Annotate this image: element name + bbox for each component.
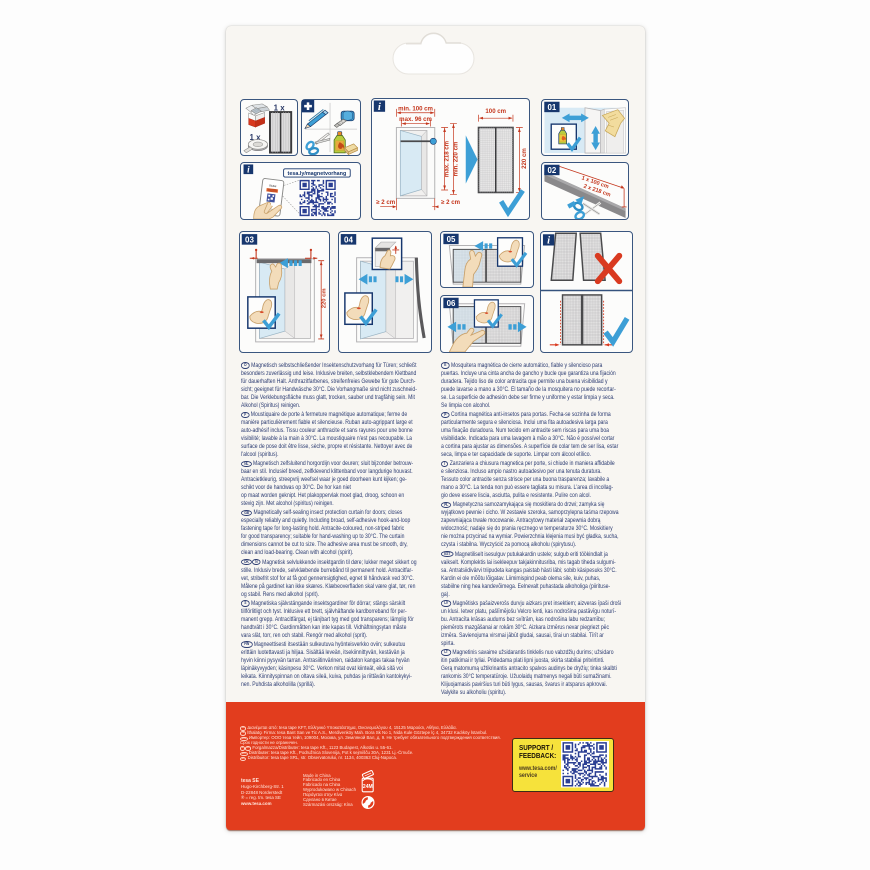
svg-text:220 cm: 220 cm bbox=[521, 148, 528, 169]
svg-text:03: 03 bbox=[245, 236, 254, 245]
svg-text:tesa.ly/magnetvorhang: tesa.ly/magnetvorhang bbox=[288, 171, 347, 177]
svg-text:≥ 2 cm: ≥ 2 cm bbox=[441, 199, 460, 206]
svg-text:01: 01 bbox=[548, 103, 557, 112]
svg-text:220 cm: 220 cm bbox=[322, 288, 328, 308]
svg-text:i: i bbox=[247, 165, 250, 175]
svg-text:02: 02 bbox=[547, 166, 556, 175]
svg-text:04: 04 bbox=[344, 235, 353, 244]
svg-text:min. 220 cm: min. 220 cm bbox=[452, 141, 459, 176]
svg-text:max. 218 cm: max. 218 cm bbox=[444, 140, 451, 177]
svg-text:1 x: 1 x bbox=[274, 103, 286, 112]
svg-text:06: 06 bbox=[447, 299, 456, 308]
svg-text:i: i bbox=[547, 235, 550, 247]
svg-text:24M: 24M bbox=[363, 784, 373, 790]
svg-text:i: i bbox=[378, 101, 381, 113]
svg-text:100 cm: 100 cm bbox=[485, 108, 506, 115]
svg-text:max. 96 cm: max. 96 cm bbox=[399, 116, 432, 123]
svg-text:≥ 2 cm: ≥ 2 cm bbox=[376, 199, 395, 206]
svg-text:min. 100 cm: min. 100 cm bbox=[398, 105, 433, 112]
svg-text:05: 05 bbox=[447, 235, 456, 244]
